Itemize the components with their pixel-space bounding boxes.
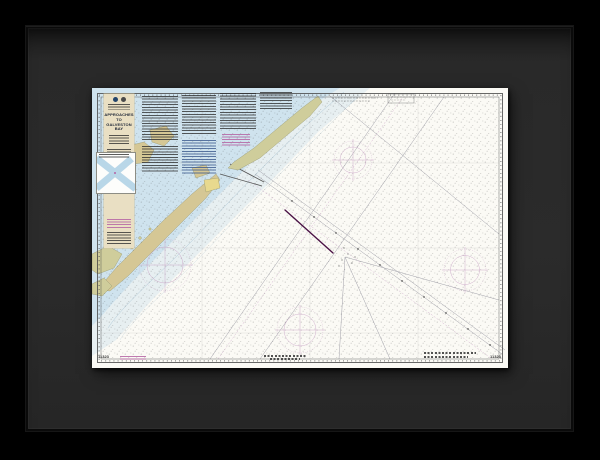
marsh-islet-1: [139, 237, 142, 240]
note-block-3: [220, 93, 256, 129]
note-block-4: [260, 92, 292, 110]
note-block-magenta: [222, 134, 250, 146]
chart-paper: APPROACHES TO GALVESTON BAY 11323: [92, 88, 508, 368]
commerce-logo-icon: [121, 97, 126, 102]
noaa-logo-icon: [113, 97, 118, 102]
title-block-lower-text: [107, 232, 131, 244]
chart-title-line2: GALVESTON BAY: [104, 123, 134, 133]
note-block-1: [142, 96, 178, 140]
chart-number-bottom-right: 11323: [490, 355, 501, 359]
inset-map-title-text: [99, 154, 129, 159]
bottom-margin-text-4: [424, 356, 468, 358]
chart-number-bottom-left: 11323: [98, 355, 109, 359]
bottom-margin-text-1: [264, 355, 306, 357]
title-block-scale-text: [109, 135, 129, 145]
mat-board: APPROACHES TO GALVESTON BAY 11323: [28, 28, 571, 429]
bottom-margin-text-3: [424, 352, 476, 354]
note-block-blue: [182, 140, 216, 174]
publisher-note-magenta: [120, 356, 146, 361]
marsh-islet-2: [149, 228, 151, 230]
title-block-magenta-text: [107, 219, 131, 229]
product-photo-background: APPROACHES TO GALVESTON BAY 11323: [0, 0, 600, 460]
inset-map: [96, 152, 136, 194]
bottom-margin-text-2: [270, 358, 300, 360]
title-block-header-text: [108, 104, 130, 110]
chart-title: APPROACHES TO GALVESTON BAY: [104, 113, 134, 132]
note-block-2: [182, 95, 216, 135]
inset-buoy-mark: [114, 172, 116, 174]
note-block-5: [142, 146, 178, 172]
agency-logos: [104, 97, 134, 102]
